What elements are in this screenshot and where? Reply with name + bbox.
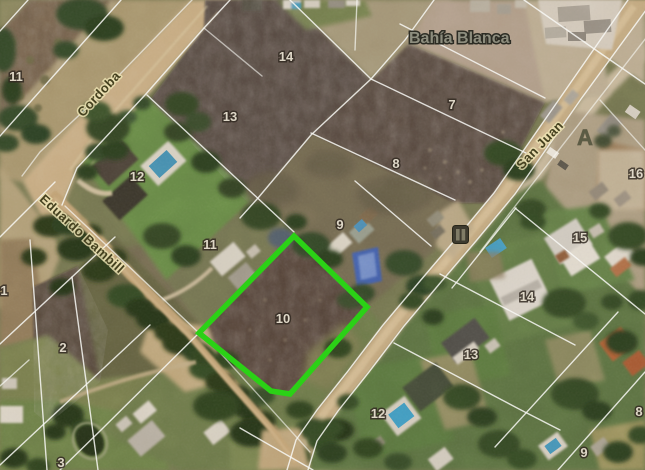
svg-text:Bahía Blanca: Bahía Blanca — [409, 30, 510, 47]
svg-text:1: 1 — [0, 283, 7, 298]
svg-text:8: 8 — [635, 404, 642, 419]
svg-text:7: 7 — [448, 97, 455, 112]
svg-text:14: 14 — [520, 289, 535, 304]
svg-text:9: 9 — [580, 445, 587, 460]
svg-text:11: 11 — [9, 69, 23, 84]
svg-text:13: 13 — [464, 347, 478, 362]
svg-text:A: A — [577, 125, 593, 150]
svg-text:13: 13 — [223, 109, 237, 124]
svg-text:11: 11 — [203, 237, 217, 252]
svg-text:12: 12 — [130, 169, 144, 184]
svg-text:16: 16 — [629, 166, 643, 181]
svg-text:2: 2 — [59, 340, 66, 355]
svg-text:3: 3 — [57, 455, 64, 470]
svg-text:14: 14 — [279, 49, 294, 64]
svg-text:9: 9 — [336, 217, 343, 232]
svg-text:15: 15 — [573, 230, 587, 245]
svg-text:8: 8 — [392, 156, 399, 171]
svg-text:10: 10 — [276, 311, 290, 326]
svg-text:12: 12 — [371, 406, 385, 421]
